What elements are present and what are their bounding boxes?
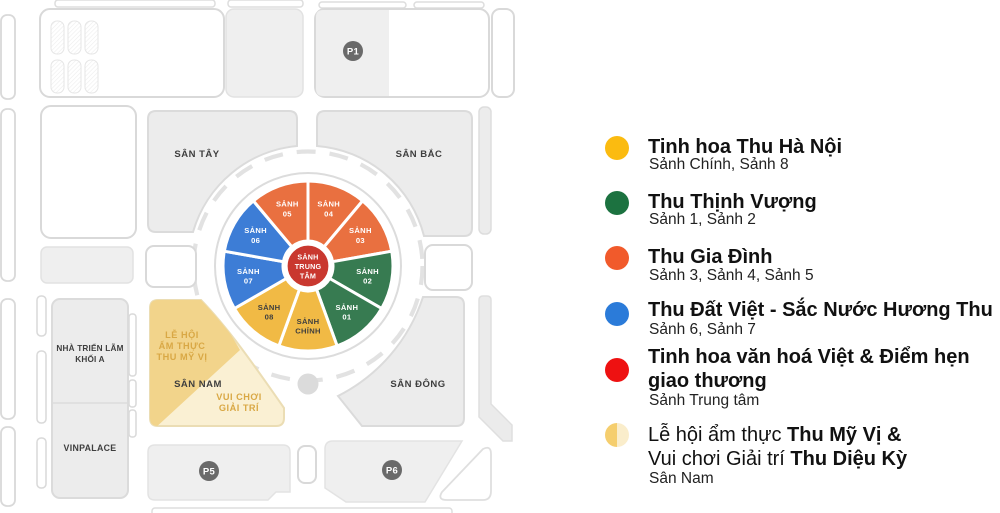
svg-text:P1: P1	[347, 47, 360, 58]
svg-text:TRUNG: TRUNG	[295, 262, 322, 271]
svg-text:04: 04	[324, 209, 334, 218]
svg-text:SÂN TÂY: SÂN TÂY	[174, 148, 219, 160]
svg-text:SẢNH: SẢNH	[349, 226, 372, 235]
svg-text:SẢNH: SẢNH	[276, 200, 299, 209]
svg-text:SÂN NAM: SÂN NAM	[174, 378, 222, 390]
svg-text:NHÀ TRIỂN LÃM: NHÀ TRIỂN LÃM	[56, 342, 123, 353]
svg-text:SẢNH: SẢNH	[237, 267, 260, 276]
svg-text:06: 06	[251, 236, 260, 245]
svg-text:LỄ HỘI: LỄ HỘI	[165, 329, 199, 340]
svg-text:VINPALACE: VINPALACE	[64, 443, 117, 453]
svg-text:SẢNH: SẢNH	[317, 200, 340, 209]
svg-text:CHÍNH: CHÍNH	[295, 327, 321, 336]
svg-text:TÂM: TÂM	[300, 272, 316, 281]
svg-text:SẢNH: SẢNH	[297, 317, 320, 326]
svg-text:GIẢI TRÍ: GIẢI TRÍ	[219, 402, 259, 413]
svg-text:SẢNH: SẢNH	[336, 303, 359, 312]
svg-text:KHỐI A: KHỐI A	[75, 353, 105, 364]
svg-text:P6: P6	[386, 466, 398, 477]
svg-text:SÂN ĐÔNG: SÂN ĐÔNG	[390, 378, 445, 390]
svg-text:SÂN BẮC: SÂN BẮC	[396, 148, 443, 160]
svg-text:02: 02	[363, 277, 372, 286]
svg-text:SẢNH: SẢNH	[297, 253, 318, 262]
svg-text:VUI CHƠI: VUI CHƠI	[216, 392, 262, 402]
svg-text:01: 01	[342, 313, 352, 322]
svg-text:THU MỸ VỊ: THU MỸ VỊ	[157, 352, 208, 362]
svg-text:ẨM THỰC: ẨM THỰC	[159, 340, 206, 351]
svg-text:03: 03	[356, 236, 365, 245]
svg-text:P5: P5	[203, 467, 216, 478]
svg-text:SẢNH: SẢNH	[356, 267, 379, 276]
svg-text:SẢNH: SẢNH	[258, 303, 281, 312]
svg-text:SẢNH: SẢNH	[244, 226, 267, 235]
svg-text:08: 08	[265, 313, 274, 322]
svg-text:07: 07	[244, 277, 253, 286]
svg-text:05: 05	[283, 209, 293, 218]
